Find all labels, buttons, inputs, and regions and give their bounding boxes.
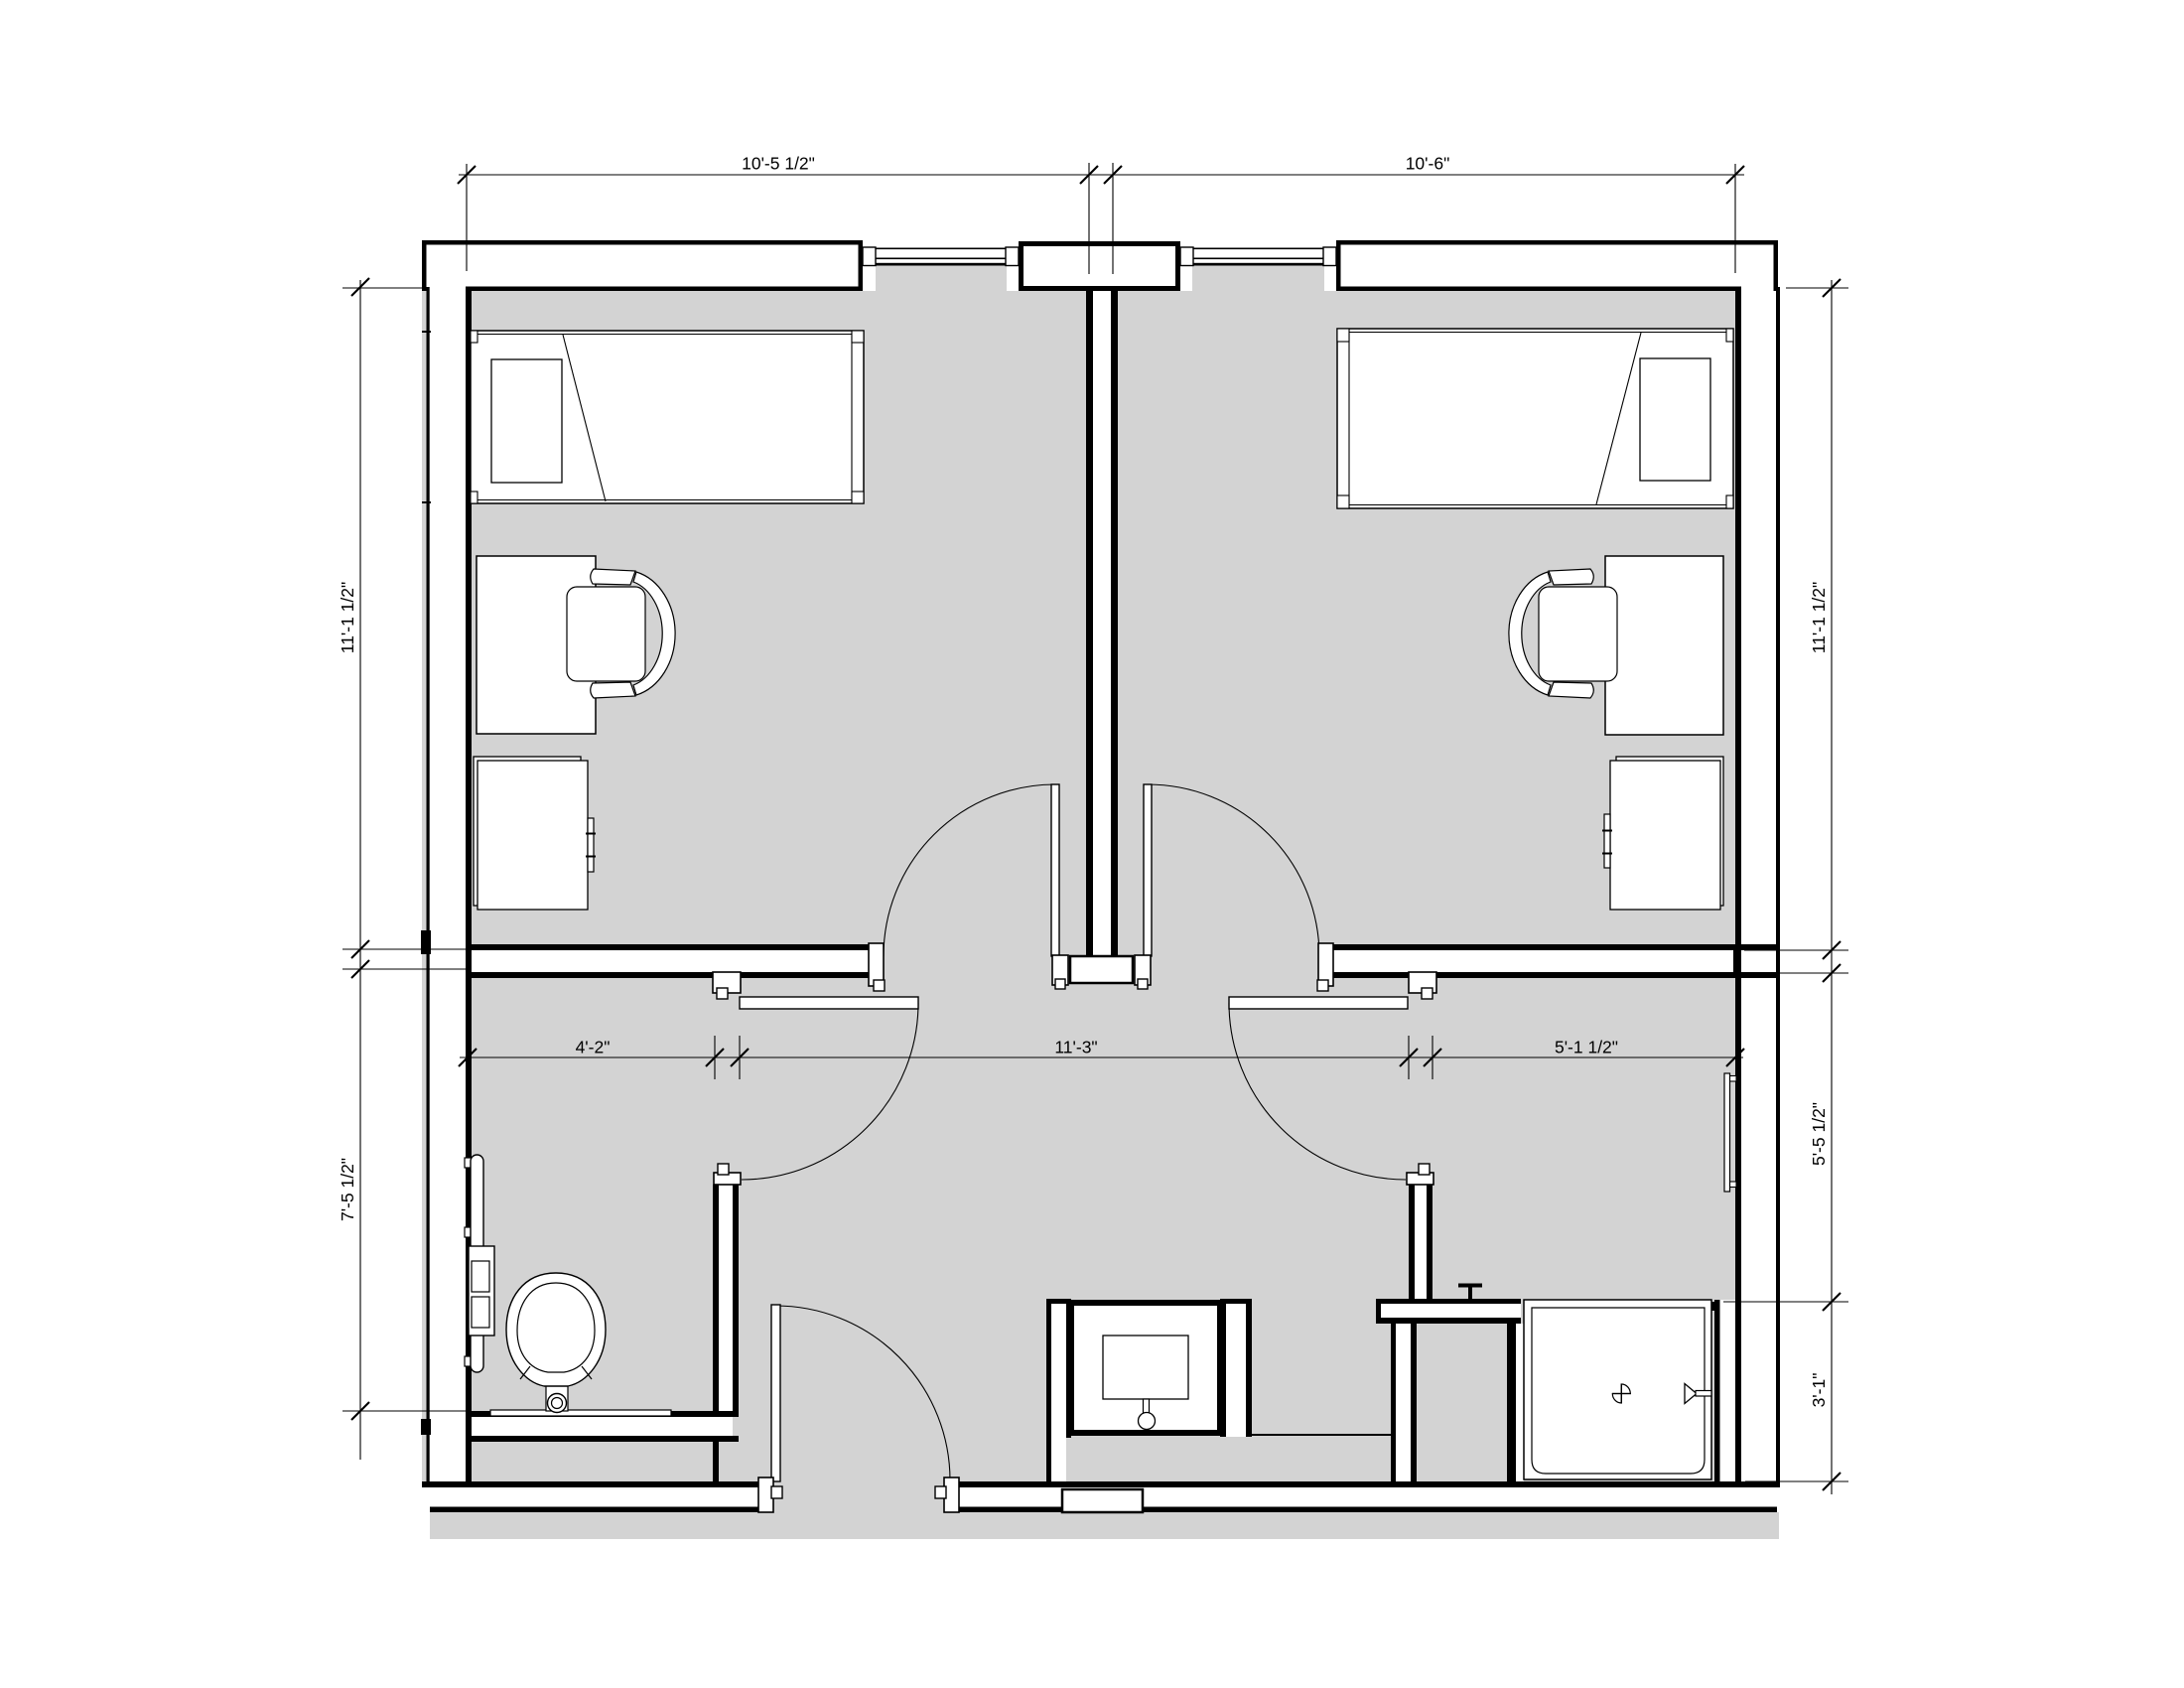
svg-text:11'-3": 11'-3" bbox=[1054, 1038, 1097, 1057]
svg-text:10'-5 1/2": 10'-5 1/2" bbox=[742, 154, 815, 174]
svg-text:5'-5 1/2": 5'-5 1/2" bbox=[1809, 1102, 1829, 1166]
svg-text:11'-1 1/2": 11'-1 1/2" bbox=[1809, 582, 1829, 653]
svg-text:10'-6": 10'-6" bbox=[1406, 154, 1450, 174]
svg-text:4'-2": 4'-2" bbox=[576, 1038, 611, 1057]
svg-text:3'-1": 3'-1" bbox=[1809, 1373, 1829, 1408]
svg-text:5'-1 1/2": 5'-1 1/2" bbox=[1555, 1038, 1618, 1057]
svg-text:7'-5 1/2": 7'-5 1/2" bbox=[338, 1158, 357, 1221]
svg-text:11'-1 1/2": 11'-1 1/2" bbox=[338, 582, 357, 653]
